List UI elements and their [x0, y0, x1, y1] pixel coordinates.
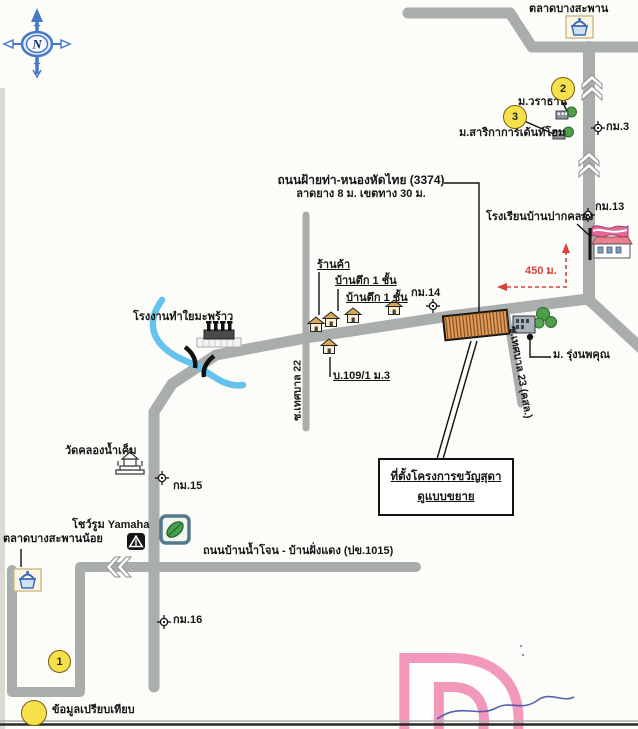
gas-leaf-icon: [161, 516, 189, 543]
label-km16: กม.16: [173, 614, 202, 627]
label-distance-450m: 450 ม.: [525, 265, 557, 278]
label-south-road: ถนนบ้านน้ำโจน - บ้านฝั่งแดง (ปข.1015): [203, 545, 393, 558]
school-icon: [590, 226, 632, 260]
label-house-b: บ้านตึก 1 ชั้น: [346, 292, 408, 305]
map-drawing: N D: [0, 0, 638, 729]
label-km14: กม.14: [411, 287, 440, 300]
project-callout-line2: ดูแบบขยาย: [417, 488, 474, 506]
stamp-letter: D: [398, 627, 521, 729]
label-soi-22: ซ.เทศบาล 22: [292, 351, 305, 429]
label-factory: โรงงานทำใยมะพร้าว: [133, 311, 233, 324]
compass-rose-icon: N: [4, 8, 70, 77]
label-market-noi: ตลาดบางสะพานน้อย: [3, 533, 103, 546]
highway-label-leader: [444, 183, 479, 312]
pen-dot: [520, 645, 522, 647]
house-icon: [321, 339, 337, 354]
label-temple: วัดคลองน้ำเค็ม: [65, 445, 136, 458]
arrow-left-icon: [497, 283, 507, 291]
road-top: [408, 13, 638, 47]
rung-label-leader: [530, 339, 551, 357]
rung-dot: [527, 334, 533, 340]
house-icon: [308, 317, 324, 332]
market-icon: [14, 569, 41, 591]
project-callout-box: ที่ตั้งโครงการขวัญสุดา ดูแบบขยาย: [378, 458, 514, 516]
yamaha-icon: [127, 533, 145, 550]
legend-swatch: [21, 700, 47, 726]
factory-icon: [197, 321, 241, 347]
legend-label: ข้อมูลเปรียบเทียบ: [52, 704, 135, 717]
label-km13: กม.13: [595, 201, 624, 214]
scan-edge-left: [0, 88, 5, 729]
label-highway-detail: ลาดยาง 8 ม. เขตทาง 30 ม.: [276, 188, 446, 201]
house-icon: [323, 312, 339, 327]
callout-leader-1: [437, 341, 471, 459]
comparison-badge-3: 3: [503, 105, 527, 129]
label-market-bang-saphan: ตลาดบางสะพาน: [529, 3, 608, 16]
label-km15: กม.15: [173, 480, 202, 493]
comparison-badge-2: 2: [551, 77, 575, 101]
project-callout-line1: ที่ตั้งโครงการขวัญสุดา: [391, 468, 502, 486]
road-south: [12, 567, 416, 692]
house-icon: [345, 308, 361, 323]
arrow-up-icon: [562, 243, 570, 253]
label-village-rung: ม. รุ่งนพคุณ: [553, 349, 610, 362]
label-school: โรงเรียนบ้านปากคลอง: [486, 211, 593, 224]
label-house-a: บ้านตึก 1 ชั้น: [335, 275, 397, 288]
label-highway-name: ถนนฝ้ายท่า-หนองหัดไทย (3374): [276, 173, 446, 187]
label-village-sarika: ม.สาริกาการ์เด้นท์โฮม: [459, 127, 565, 140]
label-shop: ร้านค้า: [317, 259, 350, 272]
label-yamaha: โชว์รูม Yamaha: [72, 519, 149, 532]
comparison-badge-1: 1: [48, 650, 71, 673]
compass-north-letter: N: [31, 37, 42, 52]
market-icon: [566, 16, 593, 38]
km-marker-icon: [426, 299, 440, 313]
map-canvas: N D ตลาดบางสะพาน 2 ม.วราธานี 3 ม.สาริกาก…: [0, 0, 638, 729]
pen-dot: [522, 654, 524, 656]
label-house-number: บ.109/1 ม.3: [333, 370, 390, 383]
callout-leader-2: [443, 341, 477, 459]
label-km3: กม.3: [606, 121, 629, 134]
